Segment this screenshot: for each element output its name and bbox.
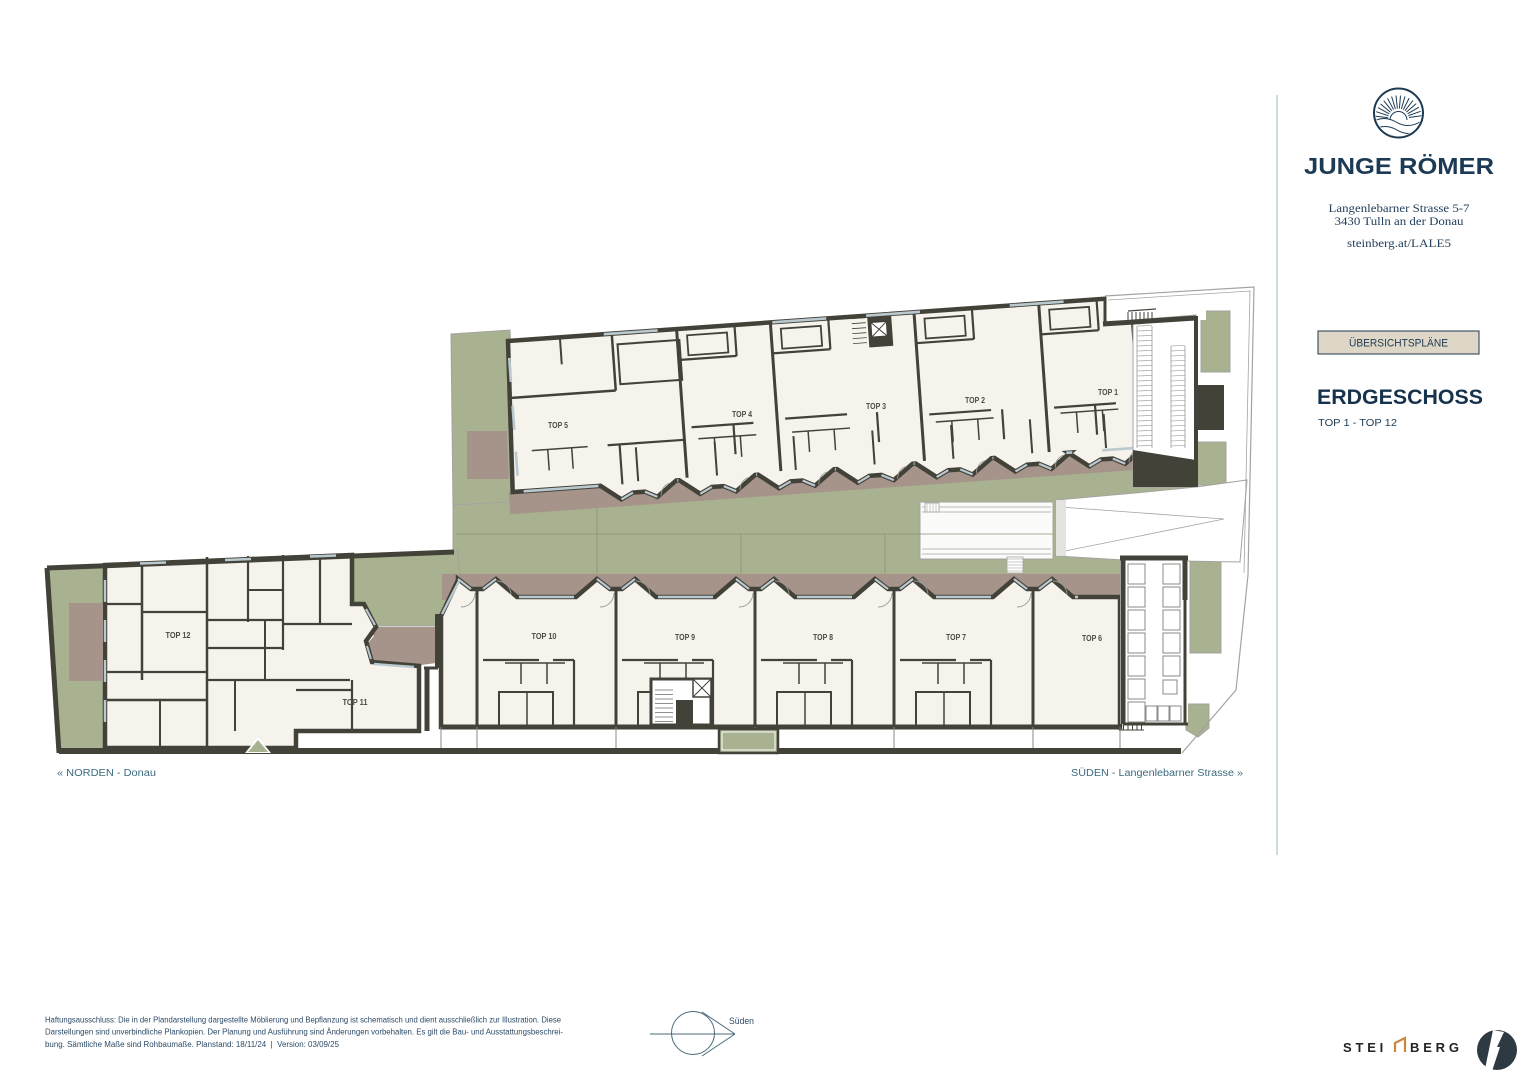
svg-text:TOP 2: TOP 2 [965,396,985,405]
svg-text:JUNGE RÖMER: JUNGE RÖMER [1304,153,1494,179]
svg-text:Langenlebarner Strasse 5-7: Langenlebarner Strasse 5-7 [1329,201,1470,215]
svg-text:TOP 5: TOP 5 [548,421,568,430]
svg-text:BERG: BERG [1410,1040,1463,1055]
svg-text:TOP 11: TOP 11 [343,698,369,707]
svg-text:TOP 9: TOP 9 [675,633,695,642]
svg-text:TOP 10: TOP 10 [532,632,558,641]
svg-text:Darstellungen sind unverbindli: Darstellungen sind unverbindliche Planko… [45,1028,563,1037]
svg-text:TOP 1 - TOP 12: TOP 1 - TOP 12 [1318,417,1397,429]
svg-text:TOP 1: TOP 1 [1098,388,1118,397]
svg-text:TOP 3: TOP 3 [866,402,886,411]
svg-text:Haftungsausschluss: Die in der: Haftungsausschluss: Die in der Plandarst… [45,1016,561,1025]
svg-text:TOP 12: TOP 12 [166,631,192,640]
svg-text:ÜBERSICHTSPLÄNE: ÜBERSICHTSPLÄNE [1349,338,1448,350]
svg-text:SÜDEN - Langenlebarner Strasse: SÜDEN - Langenlebarner Strasse » [1071,767,1243,779]
svg-text:3430 Tulln an der Donau: 3430 Tulln an der Donau [1335,214,1464,228]
svg-text:STEI: STEI [1343,1040,1387,1055]
svg-text:Süden: Süden [729,1016,754,1027]
svg-text:TOP 6: TOP 6 [1082,634,1102,643]
svg-text:steinberg.at/LALE5: steinberg.at/LALE5 [1347,236,1451,250]
svg-text:« NORDEN - Donau: « NORDEN - Donau [57,768,156,779]
svg-text:TOP 7: TOP 7 [946,633,966,642]
svg-text:TOP 4: TOP 4 [732,410,752,419]
svg-text:ERDGESCHOSS: ERDGESCHOSS [1317,385,1483,409]
svg-text:bung. Sämtliche Maße sind Rohb: bung. Sämtliche Maße sind Rohbaumaße. Pl… [45,1040,340,1049]
svg-text:TOP 8: TOP 8 [813,633,833,642]
